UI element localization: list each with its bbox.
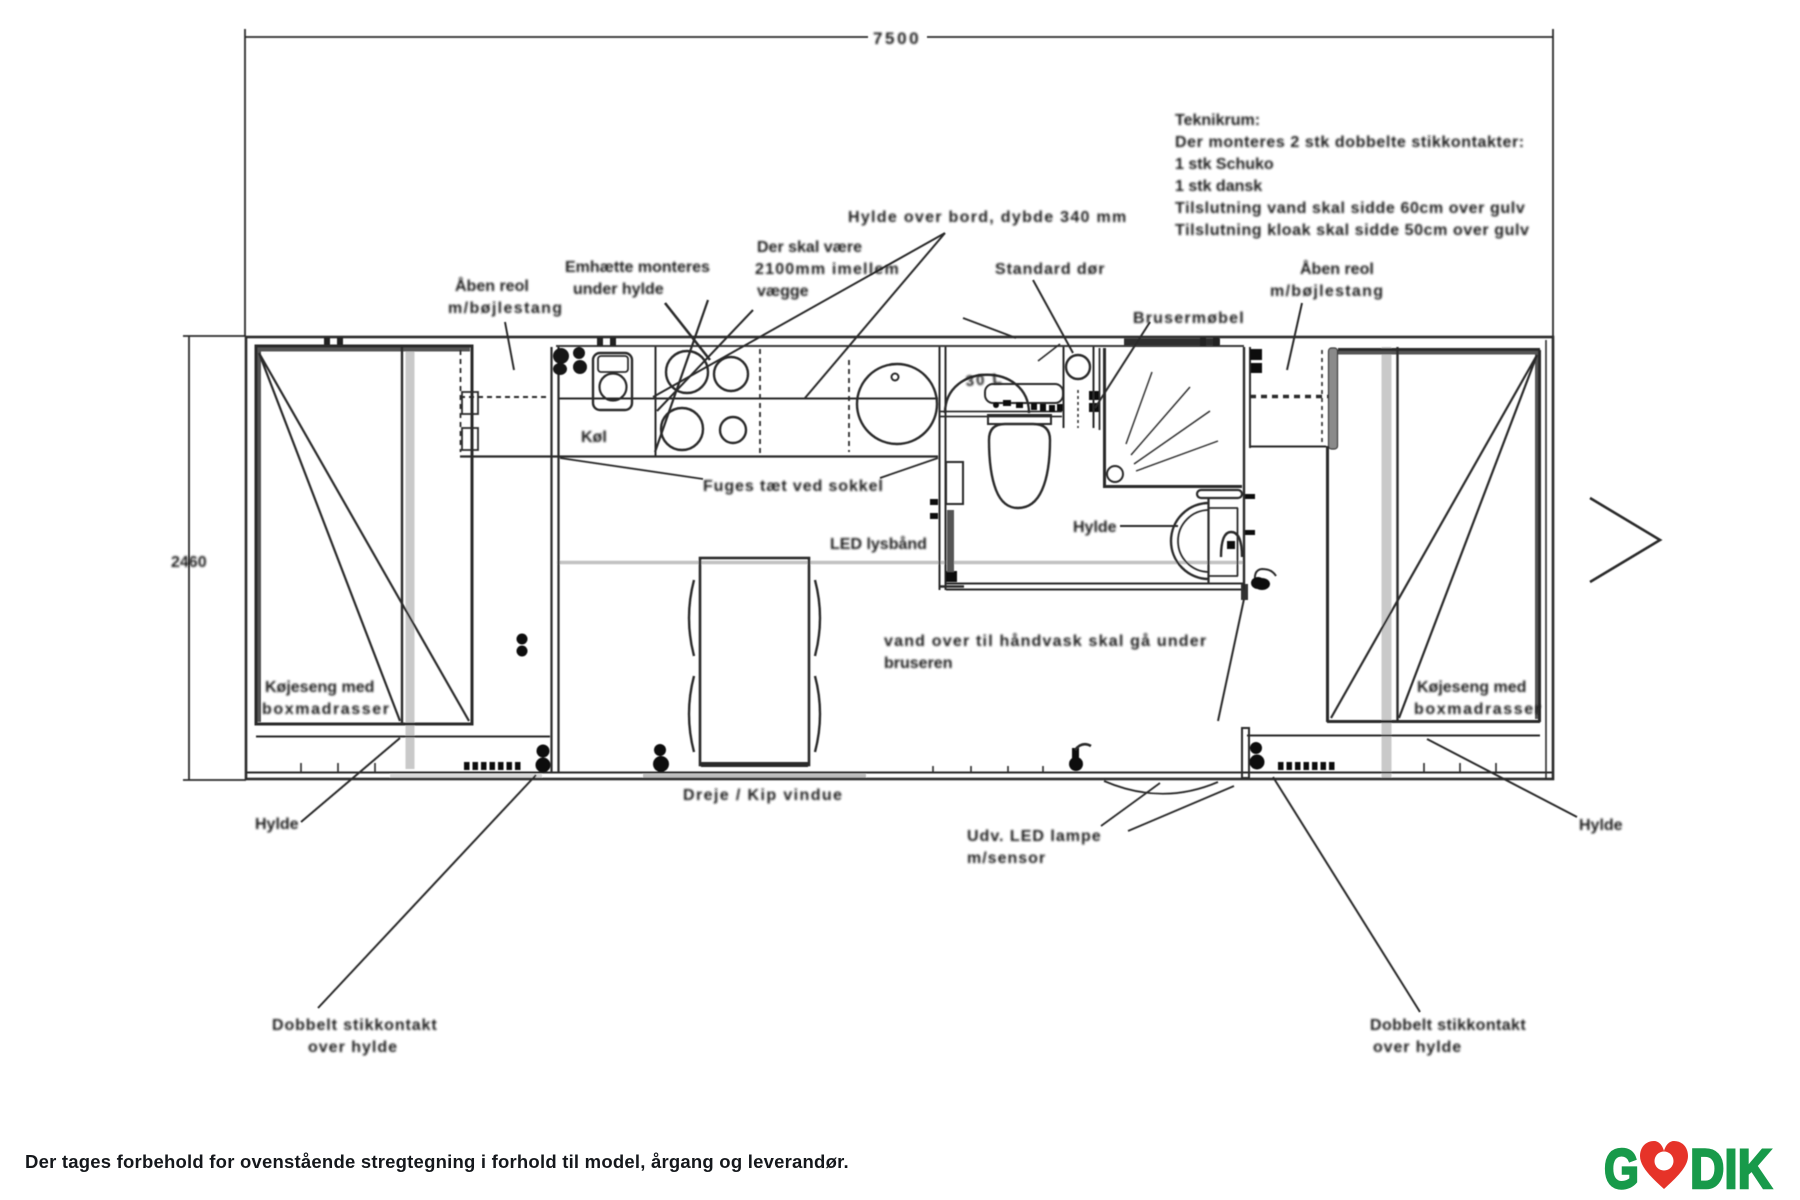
svg-text:bruseren: bruseren — [884, 655, 952, 672]
svg-text:Brusermøbel: Brusermøbel — [1133, 310, 1245, 327]
svg-text:boxmadrasser: boxmadrasser — [262, 701, 391, 718]
svg-text:Der tages forbehold for ovenst: Der tages forbehold for ovenstående stre… — [25, 1151, 849, 1172]
svg-text:m/bøjlestang: m/bøjlestang — [1270, 283, 1384, 300]
svg-text:Dobbelt stikkontakt: Dobbelt stikkontakt — [272, 1017, 438, 1034]
svg-text:Åben reol: Åben reol — [455, 276, 529, 295]
svg-text:2460: 2460 — [171, 554, 207, 571]
svg-text:DIK: DIK — [1690, 1137, 1772, 1200]
svg-text:over hylde: over hylde — [1373, 1039, 1462, 1056]
svg-text:m/sensor: m/sensor — [967, 850, 1046, 867]
svg-text:Teknikrum:: Teknikrum: — [1175, 112, 1260, 129]
svg-text:Der skal være: Der skal være — [757, 239, 862, 256]
svg-text:over hylde: over hylde — [308, 1039, 398, 1056]
svg-text:2100mm imellem: 2100mm imellem — [755, 261, 900, 278]
svg-text:30 L: 30 L — [965, 370, 1004, 390]
svg-text:Standard dør: Standard dør — [995, 261, 1105, 278]
svg-text:Hylde: Hylde — [1073, 519, 1117, 536]
svg-text:Hylde over bord, dybde 340 mm: Hylde over bord, dybde 340 mm — [848, 209, 1128, 226]
svg-text:G: G — [1604, 1137, 1639, 1200]
svg-text:under hylde: under hylde — [573, 281, 664, 298]
svg-text:Tilslutning vand skal sidde 60: Tilslutning vand skal sidde 60cm over gu… — [1175, 200, 1525, 217]
svg-text:Køjeseng med: Køjeseng med — [1417, 679, 1526, 696]
svg-text:Udv. LED lampe: Udv. LED lampe — [967, 828, 1102, 845]
svg-text:Hylde: Hylde — [1579, 817, 1623, 834]
svg-text:Dreje / Kip vindue: Dreje / Kip vindue — [683, 787, 843, 804]
svg-text:Dobbelt stikkontakt: Dobbelt stikkontakt — [1370, 1017, 1526, 1034]
svg-text:boxmadrasser: boxmadrasser — [1414, 701, 1543, 718]
svg-text:Fuges tæt ved sokkel: Fuges tæt ved sokkel — [703, 478, 884, 495]
svg-text:vægge: vægge — [757, 283, 809, 300]
svg-text:LED lysbånd: LED lysbånd — [830, 535, 927, 553]
svg-text:m/bøjlestang: m/bøjlestang — [448, 300, 563, 317]
svg-text:vand over til håndvask skal gå: vand over til håndvask skal gå under — [884, 632, 1207, 650]
svg-text:Emhætte monteres: Emhætte monteres — [565, 259, 710, 276]
svg-text:Køjeseng med: Køjeseng med — [265, 679, 374, 696]
svg-text:Hylde: Hylde — [255, 816, 299, 833]
svg-text:Åben reol: Åben reol — [1300, 259, 1374, 278]
svg-text:7500: 7500 — [873, 29, 921, 48]
svg-text:1 stk Schuko: 1 stk Schuko — [1175, 156, 1274, 173]
svg-text:1 stk dansk: 1 stk dansk — [1175, 178, 1262, 195]
svg-text:Køl: Køl — [581, 429, 607, 446]
svg-text:Tilslutning kloak skal sidde 5: Tilslutning kloak skal sidde 50cm over g… — [1175, 222, 1530, 239]
svg-text:Der monteres 2 stk dobbelte st: Der monteres 2 stk dobbelte stikkontakte… — [1175, 134, 1525, 151]
